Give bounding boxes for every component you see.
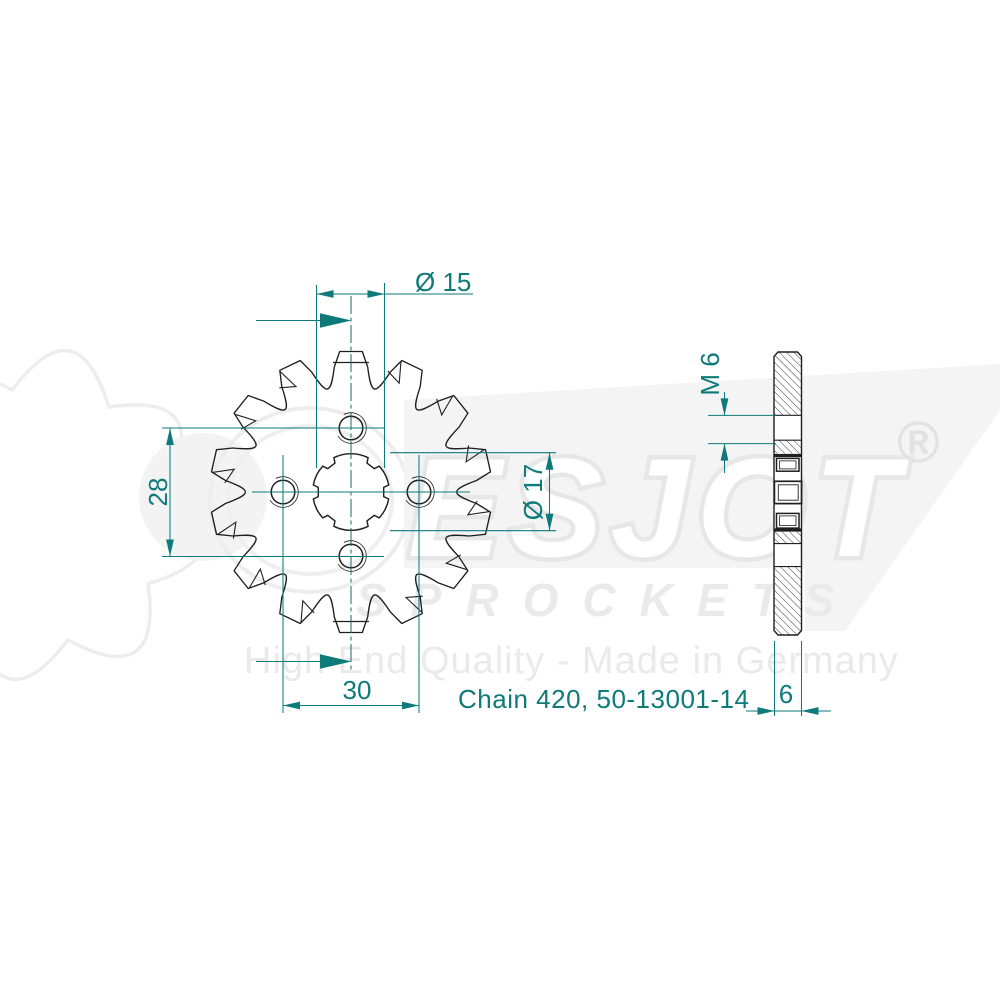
dimension-arrow-icon	[166, 428, 174, 445]
dimension-arrow-icon	[802, 707, 819, 715]
section-hatch	[774, 567, 802, 635]
section-hatch	[774, 440, 802, 453]
dim-horizontal-hole-spacing-label: 30	[343, 675, 372, 705]
dim-thread-label: M 6	[695, 352, 725, 395]
part-number-label: Chain 420, 50-13001-14	[458, 684, 749, 714]
dim-bore-diameter-label: Ø 17	[518, 464, 548, 520]
spline-section-rect	[780, 516, 797, 526]
spline-section-rect	[780, 461, 797, 469]
spline-section-rect	[778, 485, 798, 500]
dim-vertical-hole-spacing-label: 28	[143, 478, 173, 507]
watermark-layer: ESJOT ® SPROCKETS High End Quality - Mad…	[0, 351, 1000, 682]
dimension-arrow-icon	[402, 702, 419, 710]
sprocket-technical-drawing: ESJOT ® SPROCKETS High End Quality - Mad…	[0, 0, 1000, 1000]
bore-edge-band	[774, 454, 801, 457]
dimension-arrow-icon	[317, 290, 334, 298]
registered-trademark-icon: ®	[897, 410, 940, 475]
section-hatch	[774, 532, 802, 544]
dimension-arrow-icon	[368, 290, 385, 298]
section-arrow-icon	[320, 313, 352, 328]
dimension-arrow-icon	[758, 707, 775, 715]
technical-drawing-page: ESJOT ® SPROCKETS High End Quality - Mad…	[0, 0, 1000, 1000]
dim-spline-minor-diameter-label: Ø 15	[415, 267, 471, 297]
section-hatch	[774, 352, 802, 415]
bore-edge-band	[774, 528, 801, 531]
dim-width-label: 6	[779, 679, 793, 709]
dimension-arrow-icon	[283, 702, 300, 710]
